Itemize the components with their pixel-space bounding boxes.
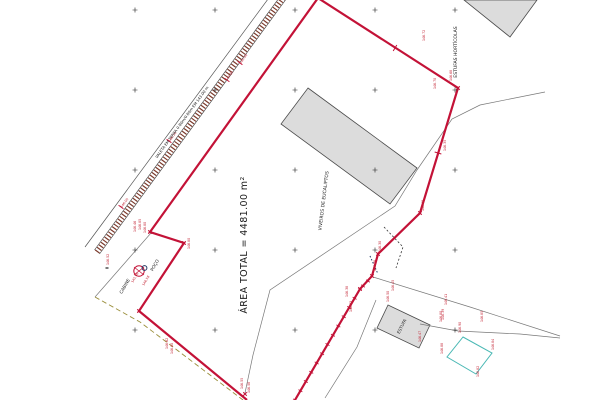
cabine-label: CABINE bbox=[118, 278, 132, 295]
building-viveiros bbox=[281, 88, 417, 204]
fence-line bbox=[420, 324, 560, 338]
elevation-label: 146.52 bbox=[106, 254, 110, 265]
grid-cross bbox=[133, 328, 138, 333]
grid-cross bbox=[213, 248, 218, 253]
elevation-label: 146.68 bbox=[449, 70, 453, 81]
elevation-label: 146.40 bbox=[421, 200, 425, 211]
elevation-label: 146.45 bbox=[391, 280, 395, 291]
grid-cross bbox=[453, 8, 458, 13]
elevation-label: 146.38 bbox=[345, 286, 349, 297]
grid-cross bbox=[373, 88, 378, 93]
survey-quad bbox=[447, 337, 492, 374]
grid-cross bbox=[133, 168, 138, 173]
grid-cross bbox=[293, 248, 298, 253]
elevation-label: 145.96 bbox=[130, 272, 139, 284]
elevation-label: 146.88 bbox=[440, 343, 444, 354]
elevation-label: 146.70 bbox=[433, 78, 437, 89]
elevation-label: 146.46 bbox=[133, 221, 137, 232]
building-top-right-greenhouse bbox=[464, 0, 537, 37]
grid-cross bbox=[293, 8, 298, 13]
grid-cross bbox=[373, 8, 378, 13]
grid-cross bbox=[293, 168, 298, 173]
elevation-label: 146.30 bbox=[378, 241, 382, 252]
elevation-label: 146.58 bbox=[247, 382, 251, 393]
grid-cross bbox=[213, 168, 218, 173]
survey-plan-canvas: 146.46146.85146.80146.80146.52145.96146.… bbox=[0, 0, 600, 400]
parcel-boundary-right bbox=[295, 0, 458, 400]
elevation-label: 146.84 bbox=[491, 339, 495, 350]
grid-cross bbox=[133, 8, 138, 13]
grid-cross bbox=[213, 8, 218, 13]
elevation-label: 146.28 bbox=[373, 260, 377, 271]
elevation-label: 146.82 bbox=[476, 366, 480, 377]
elevation-label: 146.80 bbox=[187, 238, 191, 249]
boundary-ticks-layer bbox=[106, 45, 460, 400]
grid-cross bbox=[453, 328, 458, 333]
grid-cross bbox=[133, 88, 138, 93]
fence-line bbox=[325, 300, 376, 398]
grid-cross bbox=[213, 328, 218, 333]
hedge-dashed-line bbox=[95, 297, 243, 400]
elevation-label: 146.80 bbox=[143, 222, 147, 233]
elevation-label: 146.90 bbox=[458, 322, 462, 333]
plan-drawing: 146.46146.85146.80146.80146.52145.96146.… bbox=[0, 0, 600, 400]
grid-cross bbox=[293, 328, 298, 333]
valeta-label: VALETA EM TERRA 0.80m/0.80m EM 143.00 m bbox=[154, 85, 210, 159]
area-total-label: ÁREA TOTAL = 4481.00 m² bbox=[238, 176, 250, 313]
grid-cross bbox=[373, 248, 378, 253]
elevation-label: 146.33 bbox=[349, 301, 353, 312]
grid-cross bbox=[453, 248, 458, 253]
valeta-band-edge bbox=[100, 0, 286, 254]
elevation-label: 146.58 bbox=[141, 275, 150, 287]
grid-cross bbox=[293, 88, 298, 93]
elevation-label: 146.80 bbox=[439, 311, 443, 322]
elevation-label: 146.47 bbox=[418, 331, 422, 342]
grid-cross bbox=[453, 168, 458, 173]
elevation-label: 146.85 bbox=[138, 219, 142, 230]
fence-line bbox=[245, 92, 545, 393]
elevation-label: 146.62 bbox=[165, 338, 169, 349]
viveiros-label: VIVEIROS DE EUCALIPTOS bbox=[317, 171, 330, 231]
elevation-label: 146.41 bbox=[444, 294, 448, 305]
valeta-hatch-band bbox=[97, 0, 283, 252]
poco-label: POÇO bbox=[149, 258, 161, 272]
valeta-band-edge bbox=[95, 0, 281, 250]
elevation-label: 146.50 bbox=[386, 291, 390, 302]
elevation-label: 146.60 bbox=[170, 343, 174, 354]
elevation-label: 146.85 bbox=[480, 311, 484, 322]
elevation-label: 146.72 bbox=[422, 30, 426, 41]
estufas-horticolas-label: ESTUFAS HORTÍCOLAS bbox=[452, 26, 459, 77]
elevation-label: 146.55 bbox=[240, 378, 244, 389]
grid-cross bbox=[133, 248, 138, 253]
elevation-label: 146.35 bbox=[443, 140, 447, 151]
